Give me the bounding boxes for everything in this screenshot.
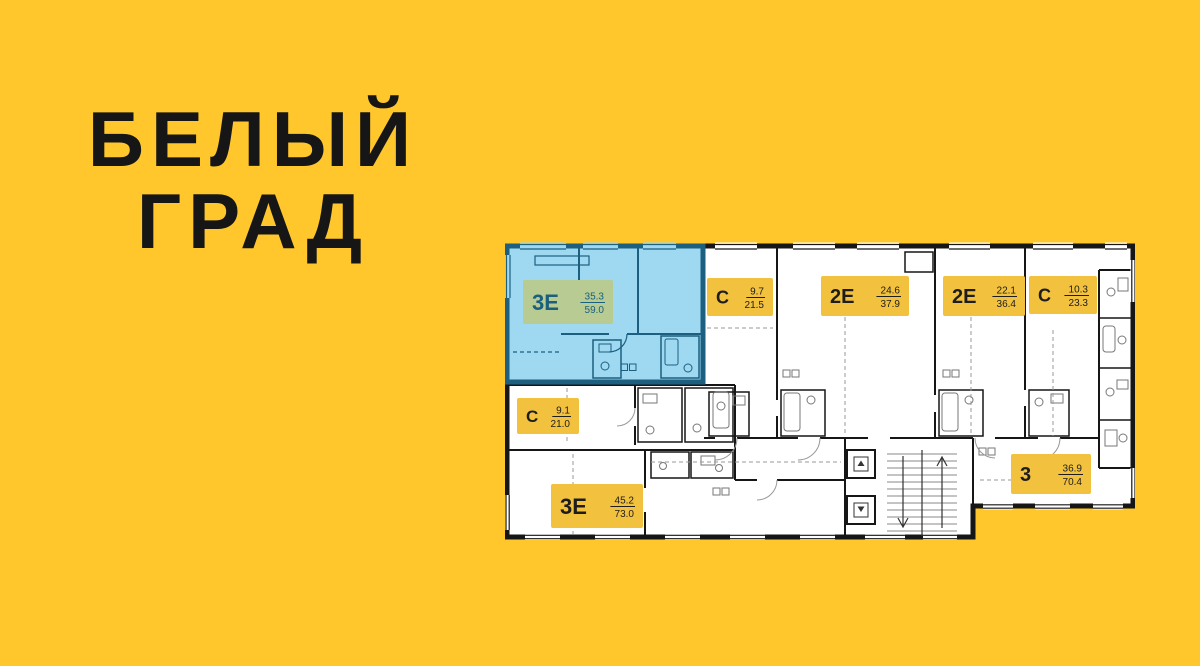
apartment-living-area: 35.3 xyxy=(585,292,605,303)
project-title: БЕЛЫЙ ГРАД xyxy=(63,98,443,262)
project-title-line1: БЕЛЫЙ xyxy=(63,98,443,180)
apartment-type-label: 2Е xyxy=(830,286,854,308)
apartment-badge-3e-59[interactable]: 3Е35.359.0 xyxy=(523,280,613,324)
apartment-type-label: 3Е xyxy=(560,494,587,519)
apartment-total-area: 23.3 xyxy=(1069,298,1089,309)
apartment-total-area: 21.0 xyxy=(551,419,571,430)
apartment-living-area: 45.2 xyxy=(615,496,635,507)
apartment-badge-2e-37-9[interactable]: 2Е24.637.9 xyxy=(821,276,909,316)
apartment-total-area: 70.4 xyxy=(1063,477,1083,488)
apartment-total-area: 73.0 xyxy=(615,509,635,520)
page-background: БЕЛЫЙ ГРАД xyxy=(0,0,1200,666)
apartment-badge-3e-73[interactable]: 3Е45.273.0 xyxy=(551,484,643,528)
apartment-badge-s-21-0[interactable]: С9.121.0 xyxy=(517,398,579,434)
apartment-living-area: 36.9 xyxy=(1063,464,1083,475)
apartment-badge-s-21-5[interactable]: С9.721.5 xyxy=(707,278,773,316)
apartment-badge-3-70-4[interactable]: 336.970.4 xyxy=(1011,454,1091,494)
apartment-living-area: 24.6 xyxy=(881,286,901,297)
apartment-living-area: 22.1 xyxy=(997,286,1017,297)
apartment-living-area: 9.1 xyxy=(556,406,570,417)
floor-plan-svg: 3Е35.359.0С9.721.52Е24.637.92Е22.136.4С1… xyxy=(505,240,1135,540)
apartment-total-area: 36.4 xyxy=(997,299,1017,310)
apartment-living-area: 10.3 xyxy=(1069,285,1089,296)
apartment-type-label: 3 xyxy=(1020,464,1031,486)
apartment-total-area: 59.0 xyxy=(585,305,605,316)
apartment-type-label: С xyxy=(1038,285,1051,305)
apartment-type-label: 2Е xyxy=(952,286,976,308)
project-title-line2: ГРАД xyxy=(63,180,443,262)
apartment-total-area: 37.9 xyxy=(881,299,901,310)
apartment-type-label: 3Е xyxy=(532,290,559,315)
apartment-total-area: 21.5 xyxy=(745,300,765,311)
apartment-type-label: С xyxy=(526,407,538,426)
apartment-type-label: С xyxy=(716,287,729,307)
floor-plan: 3Е35.359.0С9.721.52Е24.637.92Е22.136.4С1… xyxy=(505,240,1135,540)
apartment-badge-s-23-3[interactable]: С10.323.3 xyxy=(1029,276,1097,314)
apartment-badge-2e-36-4[interactable]: 2Е22.136.4 xyxy=(943,276,1025,316)
apartment-living-area: 9.7 xyxy=(750,287,764,298)
